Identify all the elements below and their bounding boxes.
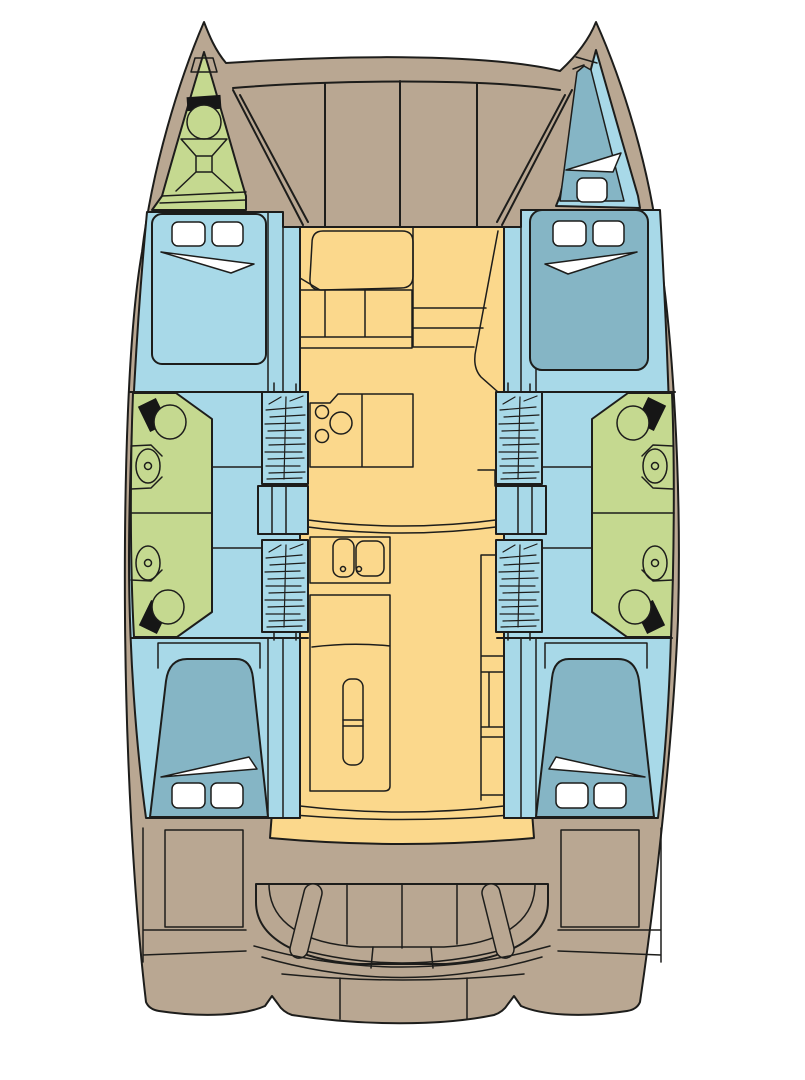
pillow: [211, 783, 243, 808]
pillow: [553, 221, 586, 246]
companionway-stairs: [262, 392, 308, 484]
stair-landing: [496, 486, 546, 534]
stair-landing: [258, 486, 308, 534]
pillow: [577, 178, 607, 202]
port-aft-berth: [150, 659, 268, 817]
catamaran-floor-plan: [0, 0, 805, 1080]
toilet-icon: [152, 590, 184, 624]
pillow: [212, 222, 243, 246]
saloon-and-galley: [270, 227, 534, 844]
floor-plan-svg: [0, 0, 805, 1080]
companionway-stairs: [262, 540, 308, 632]
port-forward-berth: [152, 214, 266, 364]
companionway-stairs: [496, 392, 542, 484]
pillow: [556, 783, 588, 808]
pillow: [594, 783, 626, 808]
pillow: [172, 222, 205, 246]
deck-hatch-icon: [187, 105, 221, 139]
aft-bench: [256, 882, 548, 968]
companionway-stairs: [496, 540, 542, 632]
starboard-forward-berth: [530, 210, 648, 370]
toilet-icon: [619, 590, 651, 624]
toilet-icon: [617, 406, 649, 440]
pillow: [172, 783, 205, 808]
pillow: [593, 221, 624, 246]
toilet-icon: [154, 405, 186, 439]
